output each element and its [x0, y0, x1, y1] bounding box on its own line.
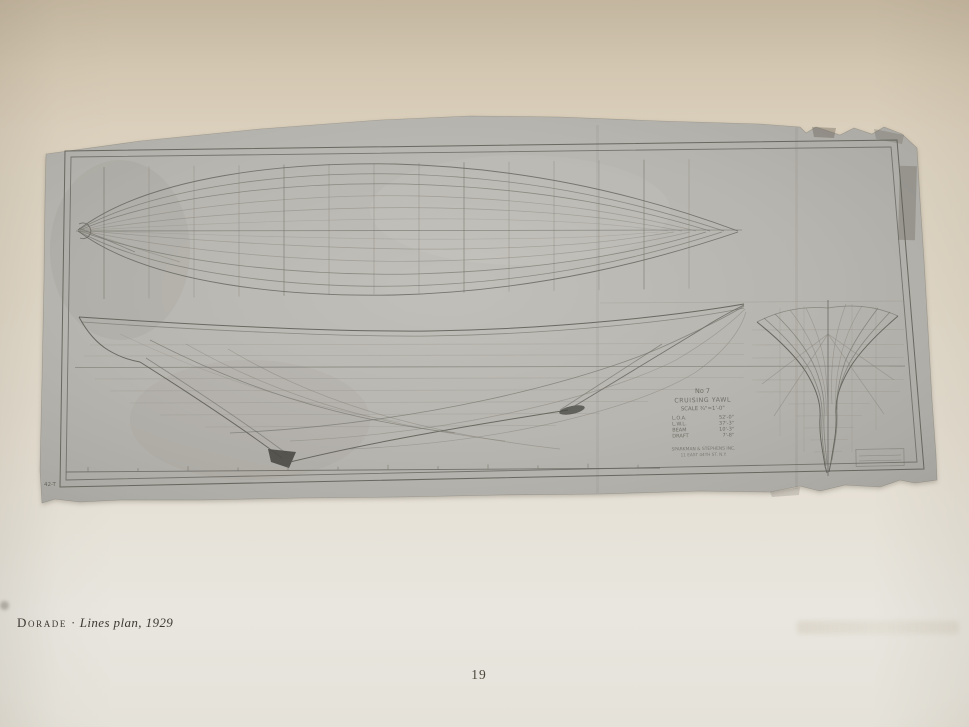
tape-mark [898, 166, 917, 240]
reverse-page-showthrough [797, 621, 959, 634]
gutter-shadow-mark [0, 601, 9, 610]
spec-label: DRAFT [672, 433, 689, 439]
scale-note: SCALE ¾"=1'-0" [681, 406, 725, 413]
page-number: 19 [444, 667, 514, 683]
caption: Dorade·Lines plan, 1929 [17, 615, 173, 631]
fold-crease [596, 125, 599, 493]
vessel-type: CRUISING YAWL [674, 397, 731, 405]
corner-drawing-number: 42-T [44, 482, 56, 488]
fold-crease [795, 127, 798, 489]
firm-address: 11 EAST 44TH ST. N.Y. [681, 452, 727, 458]
caption-separator: · [67, 615, 80, 630]
book-page-photo: No 7 CRUISING YAWL SCALE ¾"=1'-0" L.O.A.… [0, 0, 969, 727]
caption-work-title: Lines plan, 1929 [80, 615, 173, 630]
caption-vessel-name: Dorade [17, 615, 67, 630]
stain [370, 155, 670, 265]
tape-mark [812, 127, 836, 138]
spec-value: 7'-8" [722, 432, 734, 438]
design-number: No 7 [695, 387, 710, 395]
